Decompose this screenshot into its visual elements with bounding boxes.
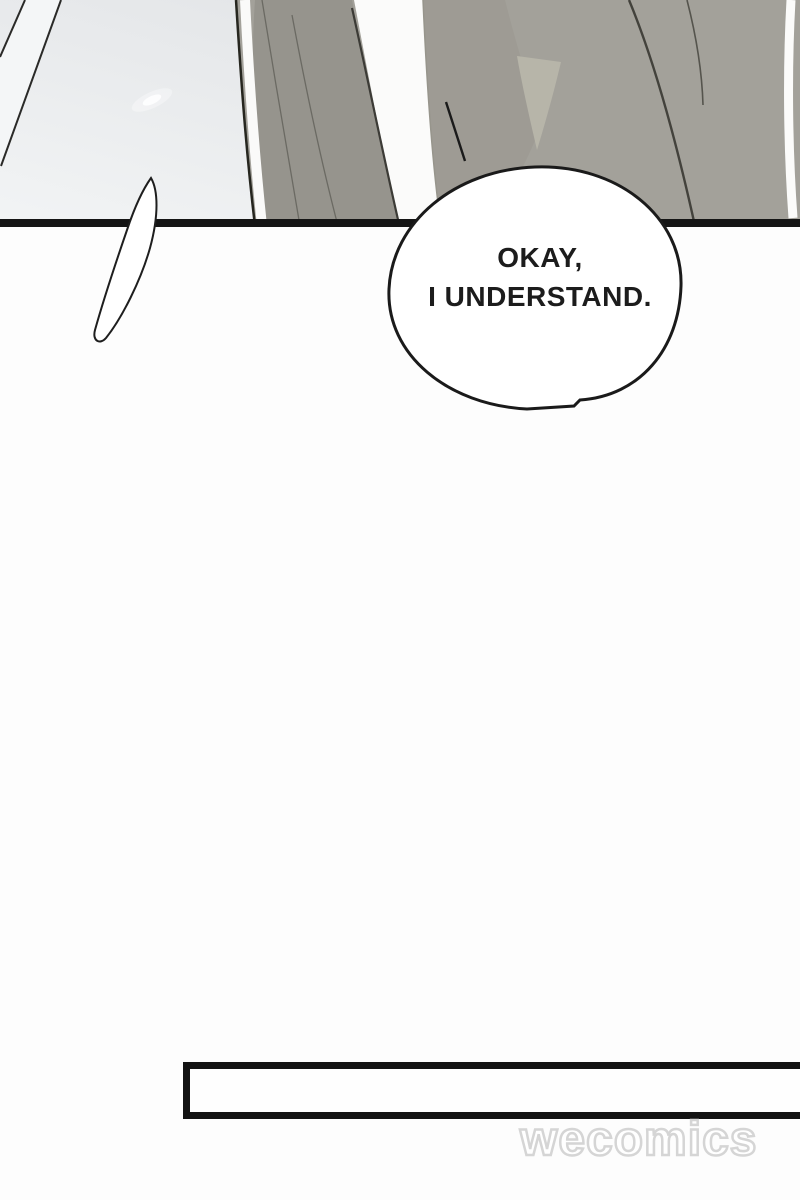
- empty-panel-frame: [183, 1062, 800, 1119]
- speech-bubble-text: OKAY, I UNDERSTAND.: [395, 238, 685, 316]
- speech-line-1: OKAY,: [395, 238, 685, 277]
- highlight-stripe-right: [789, 0, 793, 218]
- wecomics-watermark: wecomics: [520, 1116, 757, 1164]
- panel-border-line: [0, 219, 800, 227]
- speech-line-2: I UNDERSTAND.: [395, 277, 685, 316]
- top-panel-artwork: [0, 0, 800, 430]
- comic-page: OKAY, I UNDERSTAND. wecomics: [0, 0, 800, 1200]
